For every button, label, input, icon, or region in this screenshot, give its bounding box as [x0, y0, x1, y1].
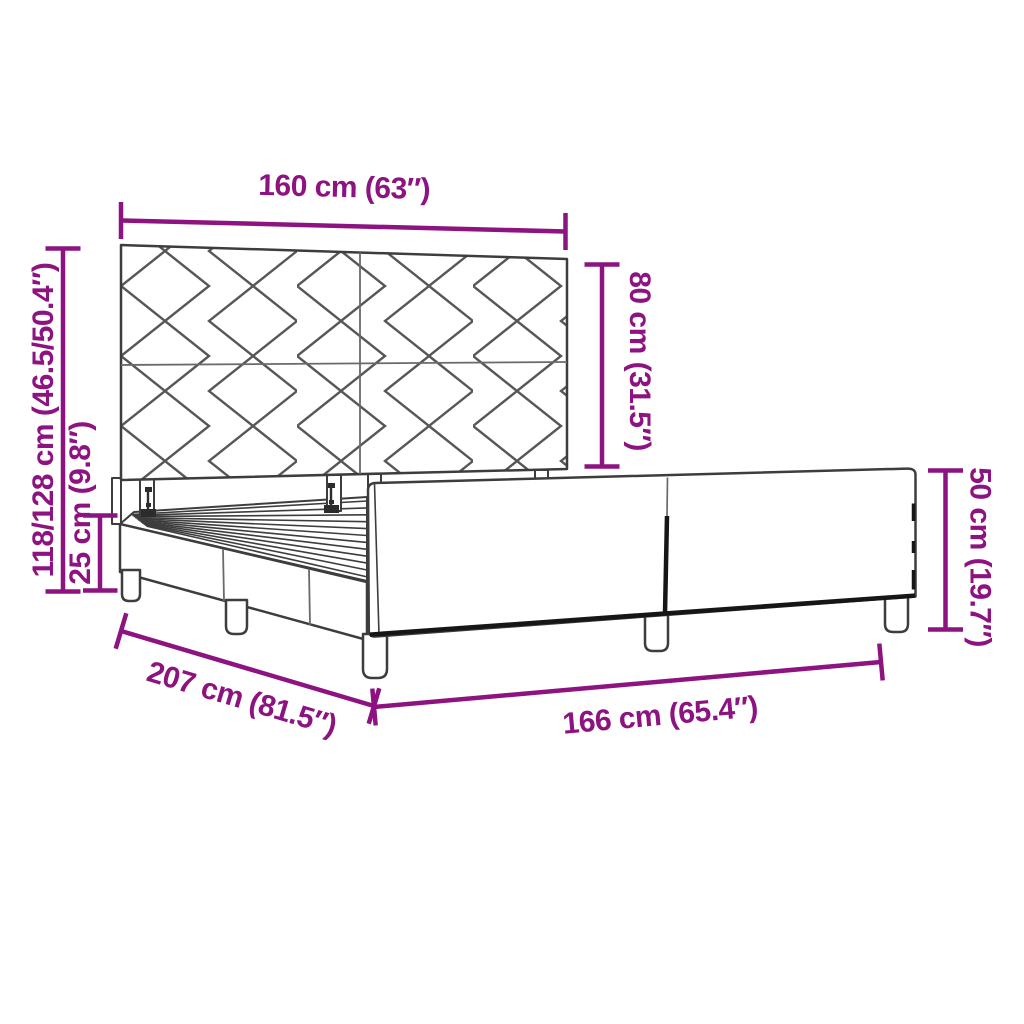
dimension-base-height: 25 cm (9.8″) — [64, 421, 118, 590]
foot-rail-seam — [667, 478, 668, 517]
dimension-headboard-panel-height: 80 cm (31.5″) — [585, 265, 657, 467]
leg — [645, 613, 668, 651]
bed-frame-drawing — [112, 245, 916, 678]
leg — [122, 570, 140, 601]
dimension-label: 118/128 cm (46.5/50.4″) — [27, 263, 60, 578]
leg — [226, 600, 247, 634]
dimension-label: 25 cm (9.8″) — [64, 421, 97, 584]
leg — [363, 634, 387, 678]
foot-rail — [368, 469, 916, 637]
dimension-label: 50 cm (19.7″) — [964, 467, 997, 647]
side-rail-seam — [223, 549, 224, 601]
dimension-frame-width: 166 cm (65.4″) — [372, 644, 882, 741]
foot-rail-seam — [665, 516, 667, 614]
dimension-label: 160 cm (63″) — [258, 169, 431, 206]
dimension-footboard-height: 50 cm (19.7″) — [928, 467, 997, 647]
headboard — [121, 245, 567, 480]
product-dimension-diagram: 160 cm (63″) 80 cm (31.5″) 118/128 cm (4… — [0, 0, 1024, 1024]
dimension-headboard-width: 160 cm (63″) — [121, 169, 566, 250]
side-rail-seam — [309, 569, 310, 625]
diagram-canvas: 160 cm (63″) 80 cm (31.5″) 118/128 cm (4… — [0, 0, 1024, 1024]
dimension-label: 166 cm (65.4″) — [561, 690, 759, 740]
dimension-label: 80 cm (31.5″) — [623, 271, 656, 451]
